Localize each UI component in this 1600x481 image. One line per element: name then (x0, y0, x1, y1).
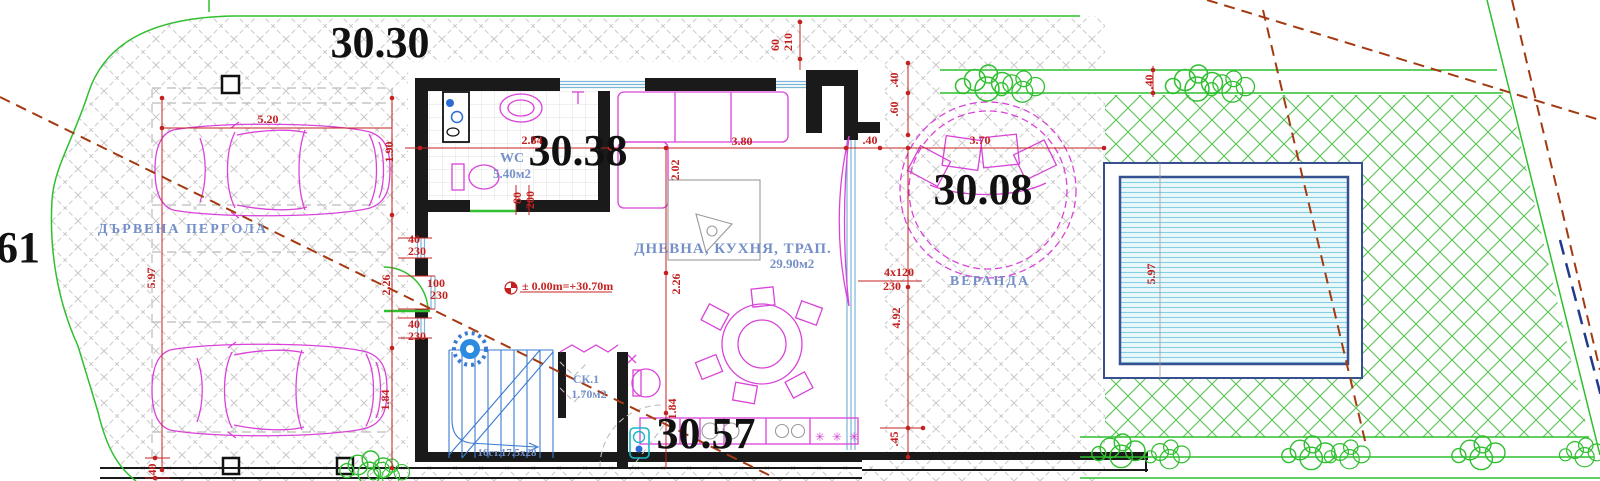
pergola-label: ДЪРВЕНА ПЕРГОЛА (98, 222, 268, 237)
dim-offset-40-top: .40 (887, 73, 901, 88)
dim-window1-h: 230 (408, 244, 426, 258)
dim-door-h: 230 (430, 288, 448, 302)
dim-offset-40-lawn: .40 (1142, 75, 1156, 90)
dim-left-zone: 2.26 (379, 275, 393, 296)
dim-dining-zone: 2.26 (669, 274, 683, 295)
dim-living-width: 3.80 (732, 134, 753, 148)
level-marker-icon (505, 282, 517, 294)
elevation-veranda: 30.08 (934, 165, 1033, 214)
dim-kitchen-depth: 1.84 (665, 399, 679, 420)
elevation-left-edge: 61 (0, 223, 40, 272)
elevation-wc: 30.38 (529, 126, 628, 175)
level-mark-text: ± 0.00m=+30.70m (522, 279, 613, 293)
dim-pergola-depth: 5.97 (144, 268, 158, 289)
closet-label: СК.1 (573, 372, 599, 386)
veranda-label: ВЕРАНДА (950, 274, 1030, 289)
dim-top-210: 210 (781, 33, 795, 51)
living-label: ДНЕВНА, КУХНЯ, ТРАП. (634, 241, 832, 257)
dim-offset-40-wall: .40 (863, 133, 878, 147)
dim-car1-width: 1.90 (382, 142, 396, 163)
living-area: 29.90м2 (770, 256, 815, 271)
dim-top-60: 60 (768, 39, 782, 51)
dim-offset-60: .60 (887, 102, 901, 117)
closet-area: 1.70м2 (571, 387, 606, 401)
dim-daybed: 3.70 (970, 133, 991, 147)
plan-canvas: 30.30 30.38 30.08 30.57 61 ДЪРВЕНА ПЕРГО… (0, 0, 1600, 481)
dim-window2-h: 230 (408, 329, 426, 343)
stairs-note: 16ст.17.5х28 (478, 447, 537, 459)
site-plan-drawing: 30.30 30.38 30.08 30.57 61 ДЪРВЕНА ПЕРГО… (0, 0, 1600, 481)
wc-area: 5.40м2 (493, 166, 531, 181)
dim-wc-door-h: 200 (523, 191, 537, 209)
wc-label: WC (500, 151, 524, 166)
dim-glazing: 4x120 (884, 265, 914, 279)
dim-corner-40: .40 (145, 464, 159, 479)
dim-sofa-zone: 2.02 (668, 160, 682, 181)
washing-machine-icon (443, 92, 469, 142)
dim-wc-width: 2.84 (522, 133, 543, 147)
dim-pool-length: 5.97 (1144, 264, 1158, 285)
dim-glazing-length: 4.92 (889, 308, 903, 329)
elevation-pergola: 30.30 (331, 18, 430, 67)
swimming-pool (1104, 163, 1362, 378)
dim-car1-length: 5.20 (258, 112, 279, 126)
dim-car2-width: 1.84 (378, 390, 392, 411)
kitchen-hob-symbol: ✳ ✳ ✳ (815, 430, 861, 444)
dim-step-45: .45 (887, 432, 901, 447)
dim-glazing-h: 230 (883, 279, 901, 293)
dim-wc-door-w: 80 (510, 192, 524, 204)
